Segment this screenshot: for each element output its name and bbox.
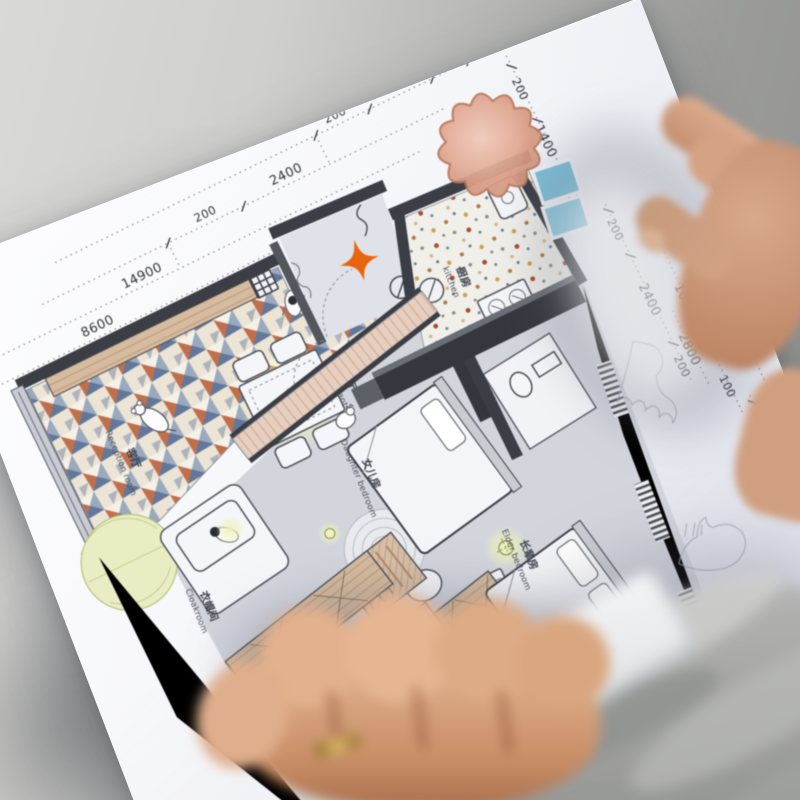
dim-label: 200 xyxy=(192,202,219,225)
left-hand xyxy=(180,590,640,800)
knuckle xyxy=(515,616,610,711)
dim-label: 14900 xyxy=(119,260,165,292)
photo-scene: 200 1300 200 200 2400 14900 8600 200 140… xyxy=(0,0,800,800)
dim-label: 2400 xyxy=(267,160,305,189)
dim-label: 200 xyxy=(509,76,532,103)
right-hand xyxy=(560,80,800,500)
